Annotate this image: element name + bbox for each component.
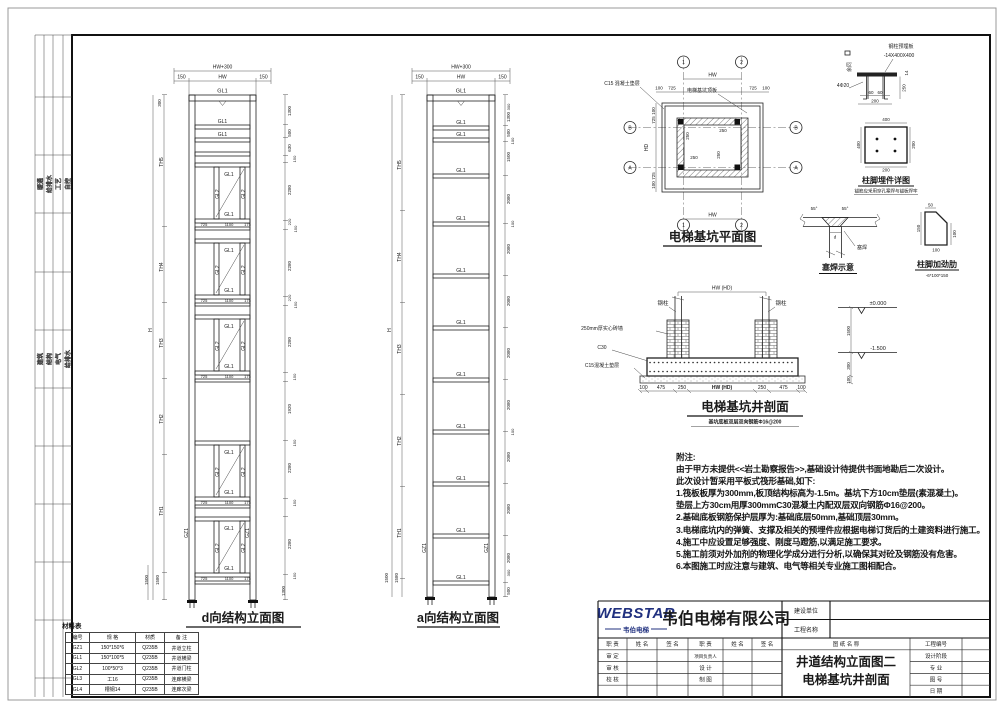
beam-label: GL1 — [224, 450, 234, 456]
dim-label: TH2 — [159, 414, 165, 424]
dim-label: 725 — [201, 222, 208, 227]
door-panel: GL1 GL2 GL2 GL1 7251100175 — [195, 315, 252, 382]
dim-label: TH5 — [397, 160, 403, 170]
drawing-name: 电梯基坑井剖面 — [802, 672, 890, 687]
dim-label: 175 — [244, 500, 251, 505]
dim-label: 1500 — [144, 574, 149, 585]
dim-label: 60 — [877, 90, 883, 95]
stiffener-detail: 50 150 100 100 柱脚加劲肋 -6*100*150 — [915, 203, 959, 279]
dim-label: 175 — [244, 222, 251, 227]
dim-label: HW — [457, 75, 466, 81]
dim-label: 725 — [749, 86, 757, 91]
dim-label: 150 — [498, 75, 507, 81]
plug-weld-detail: 55° 55° d 塞焊 塞焊示意 — [800, 206, 880, 274]
dim-label: 100 — [797, 385, 806, 391]
beam-label: GL1 — [456, 89, 466, 95]
dim-label: TH5 — [159, 157, 165, 167]
dim-label: 2080 — [506, 243, 511, 254]
dim-label: TH1 — [397, 528, 403, 538]
dim-label: 100 — [510, 428, 515, 435]
dim-label: 300 — [506, 569, 511, 576]
dim-label: 150 — [292, 155, 297, 162]
cell: Q235B — [136, 674, 165, 684]
beam-label: GL1 — [218, 132, 228, 138]
door-panel: GL1 GL2 GL2 GL1 7251100175 — [195, 441, 252, 508]
beam-label: GL1 — [456, 268, 466, 274]
dim-label: HW — [708, 213, 717, 219]
role-label: 设 计 — [699, 664, 712, 672]
detail-subtitle: -6*100*150 — [926, 273, 949, 278]
dim-label: 1100 — [225, 298, 234, 303]
dim-label: 150 — [292, 373, 297, 380]
dim-label: 60 — [868, 90, 874, 95]
column-label: GZ1 — [422, 543, 428, 553]
dim-label: 500 — [506, 129, 511, 137]
column-header: 签 名 — [761, 640, 774, 648]
level-label: -1.500 — [870, 346, 886, 352]
title-block: WEBSTAR 韦伯电梯 韦伯电梯有限公司 建设单位 工程名称 职 责 姓 名 … — [597, 601, 990, 697]
role-label: 制 图 — [699, 676, 712, 684]
dim-label: 50 — [928, 203, 934, 208]
post-label: GL2 — [241, 341, 247, 351]
field-label: 日 期 — [930, 688, 943, 695]
detail-subtitle: 锚筋应采用穿孔塞焊与锚板焊牢 — [855, 188, 918, 195]
role-label: 项目负责人 — [694, 653, 717, 660]
note-label: 钢柱预埋板 — [888, 43, 913, 50]
discipline-label: 结构 — [46, 353, 54, 365]
note-line: 垫层上方30cm用厚300mmC30混凝土内配双层双向钢筋Φ16@200。 — [676, 499, 988, 511]
column-header: 编号 — [66, 633, 90, 643]
cell: 150*150*6 — [90, 643, 136, 653]
door-panel: GL1 GL2 GL2 GL1 7251100175 — [195, 517, 252, 584]
dim-label: 1500 — [846, 325, 851, 336]
dim-label: 250 — [716, 151, 721, 159]
table-row: GL4槽钢14Q235B连廊次梁 — [66, 684, 199, 694]
dim-label: 100 — [952, 230, 957, 238]
dim-label: 2280 — [287, 184, 292, 195]
dim-label: 300 — [846, 362, 851, 370]
post-label: GL2 — [215, 189, 221, 199]
dim-label: HW (HD) — [712, 286, 733, 292]
grid-bubble-label: A — [794, 166, 798, 172]
discipline-label: 自控 — [64, 178, 72, 190]
dim-label: 55° — [842, 206, 849, 211]
cell: GL3 — [66, 674, 90, 684]
grid-bubble-label: 1 — [682, 60, 685, 66]
beam-label: GL1 — [456, 216, 466, 222]
table-row: GZ1150*150*6Q235B井道立柱 — [66, 643, 199, 653]
dim-label: 200 — [871, 99, 879, 104]
cell: 连廊次梁 — [165, 684, 199, 694]
signature-strip: 暖通 给排水 工艺 自控 建筑 结构 电气 给排水 — [35, 35, 72, 697]
dim-label: TH3 — [159, 338, 165, 348]
column-header: 职 责 — [606, 640, 619, 648]
dim-label: 250 — [758, 385, 767, 391]
dim-label: 2080 — [506, 552, 511, 563]
cell: 井道横梁 — [165, 653, 199, 663]
note-label: -14X400X400 — [884, 53, 915, 59]
column-header: 规 格 — [90, 633, 136, 643]
dim-label: 250 — [685, 132, 690, 140]
cell: 井道立柱 — [165, 643, 199, 653]
cell: 150*100*5 — [90, 653, 136, 663]
dim-label: 150 — [293, 301, 298, 308]
dim-label: 1580 — [394, 572, 399, 583]
dim-label: 100 — [655, 86, 663, 91]
cell: GZ1 — [66, 643, 90, 653]
drawing-title: 电梯基坑井剖面 — [701, 399, 789, 414]
dim-label: HW — [708, 73, 717, 79]
beam-label: GL1 — [217, 89, 227, 95]
dim-label: 100 — [510, 220, 515, 227]
post-label: GL2 — [241, 265, 247, 275]
column-label: GZ1 — [245, 528, 251, 538]
dim-label: TH2 — [397, 436, 403, 446]
column-header: 签 名 — [666, 640, 679, 648]
cell: 连廊横梁 — [165, 674, 199, 684]
column-header: 姓 名 — [731, 640, 744, 648]
note-label: C15混凝土垫层 — [585, 362, 619, 369]
grid-bubble-label: 2 — [740, 60, 743, 66]
detail-title: 柱脚埋件详图 — [862, 175, 910, 185]
beam-label: GL1 — [456, 476, 466, 482]
drawing-name: 井道结构立面图二 — [796, 654, 897, 669]
beam-label: GL1 — [456, 120, 466, 126]
dim-label: 1500 — [506, 151, 511, 162]
dim-label: HD — [644, 144, 650, 152]
embed-plate-detail: 钢柱预埋板 -14X400X400 余同 4Φ20 60 60 200 250 … — [837, 43, 918, 195]
dim-label: 14 — [904, 70, 909, 76]
beam-label: GL1 — [224, 172, 234, 178]
dim-label: TH3 — [397, 344, 403, 354]
dim-label: 250 — [902, 84, 907, 92]
dim-label: 150 — [292, 572, 297, 579]
note-line: 由于甲方未提供<<岩土勘察报告>>,基础设计待提供书面地勘后二次设计。 — [676, 463, 988, 475]
post-label: GL2 — [215, 265, 221, 275]
discipline-label: 给排水 — [64, 350, 72, 368]
column-header: 姓 名 — [636, 640, 649, 648]
dim-label: 2280 — [287, 336, 292, 347]
dim-label: 1580 — [155, 574, 160, 585]
dim-label: 150 — [415, 75, 424, 81]
field-label: 专 业 — [930, 664, 943, 672]
material-table-title: 材料表 — [62, 620, 82, 630]
discipline-label: 给排水 — [46, 175, 54, 193]
dim-label: 1100 — [225, 374, 234, 379]
dim-label: 100 — [846, 376, 851, 384]
beam-label: GL1 — [224, 490, 234, 496]
table-row: GL1150*100*5Q235B井道横梁 — [66, 653, 199, 663]
column-label: GZ1 — [484, 543, 490, 553]
beam-label: GL1 — [456, 168, 466, 174]
column-header: 材质 — [136, 633, 165, 643]
dim-label: 2080 — [506, 295, 511, 306]
role-label: 审 定 — [606, 652, 619, 660]
post-label: GL2 — [241, 467, 247, 477]
table-row: GL2100*50*3Q235B井道门柱 — [66, 664, 199, 674]
dim-label: 1920 — [287, 403, 292, 414]
material-table: 编号 规 格 材质 备 注 GZ1150*150*6Q235B井道立柱 GL11… — [65, 632, 199, 695]
column-header: 备 注 — [165, 633, 199, 643]
dim-label: 2280 — [287, 538, 292, 549]
dim-label: 2080 — [506, 399, 511, 410]
dim-label: 100 — [651, 107, 656, 115]
drawing-title: d向结构立面图 — [202, 610, 285, 625]
field-label: 工程名称 — [794, 626, 818, 634]
dim-label: 250 — [690, 155, 698, 160]
beam-label: GL1 — [456, 372, 466, 378]
column-label: GZ1 — [184, 528, 190, 538]
dim-label: H — [148, 328, 154, 332]
dim-label: 475 — [779, 385, 788, 391]
company-name: 韦伯电梯有限公司 — [662, 609, 790, 628]
cell: GL2 — [66, 664, 90, 674]
dim-label: 725 — [201, 576, 208, 581]
beam-label: GL1 — [456, 575, 466, 581]
dim-label: 150 — [292, 499, 297, 506]
dim-label: 150 — [916, 224, 921, 232]
cell: 100*50*3 — [90, 664, 136, 674]
cell: 工16 — [90, 674, 136, 684]
dim-label: d — [834, 235, 837, 240]
discipline-label: 工艺 — [55, 178, 63, 190]
dim-label: 200 — [882, 168, 890, 173]
beam-label: GL1 — [218, 119, 228, 125]
dim-label: 725 — [201, 500, 208, 505]
note-line: 5.施工前须对外加剂的物理化学成分进行分析,以确保其对砼及钢筋没有危害。 — [676, 548, 988, 560]
ladder-rungs — [433, 126, 489, 585]
dim-label: 400 — [882, 117, 890, 122]
dim-label: 1100 — [225, 222, 234, 227]
note-label: 电梯基坑顶板 — [687, 87, 717, 94]
grid-bubble-label: B — [628, 126, 632, 132]
grid-bubble-label: 1 — [682, 223, 685, 229]
beam-label: GL1 — [456, 132, 466, 138]
dim-label: 1500 — [384, 572, 389, 583]
beam-label: GL1 — [224, 248, 234, 254]
cell: GL1 — [66, 653, 90, 663]
drawing-sheet: 暖通 给排水 工艺 自控 建筑 结构 电气 给排水 HW+300 150 HW … — [0, 0, 1000, 708]
beam-label: GL1 — [456, 424, 466, 430]
dim-label: HW+300 — [213, 65, 233, 71]
dim-label: 100 — [510, 137, 515, 144]
dim-label: 1300 — [281, 585, 286, 596]
dim-label: 2280 — [287, 462, 292, 473]
discipline-label: 电气 — [55, 353, 63, 365]
cell: Q235B — [136, 664, 165, 674]
dim-label: 725 — [668, 86, 676, 91]
discipline-label: 暖通 — [37, 178, 45, 190]
dim-label: 400 — [856, 141, 861, 149]
grid-bubble-label: A — [628, 166, 632, 172]
elevation-a: HW+300 150 HW 150 GL1 GL1 GL1 GL1 GL1 GL… — [384, 65, 515, 628]
note-label: C30 — [597, 345, 606, 351]
note-label: 塞焊 — [857, 244, 867, 251]
dim-label: 475 — [657, 385, 666, 391]
cell: Q235B — [136, 684, 165, 694]
dim-label: 1100 — [225, 576, 234, 581]
field-label: 图 号 — [930, 676, 943, 684]
door-panel: GL1 GL2 GL2 GL1 7251100175 — [195, 239, 252, 306]
beam-label: GL1 — [224, 288, 234, 294]
column-header: 图 纸 名 称 — [833, 640, 860, 648]
cell: 井道门柱 — [165, 664, 199, 674]
dim-label: HW — [218, 75, 227, 81]
dim-label: 500 — [287, 129, 292, 137]
dim-label: HW (HD) — [712, 385, 733, 391]
field-label: 设计阶段 — [925, 652, 948, 660]
beam-label: GL1 — [224, 364, 234, 370]
beam-label: GL1 — [456, 528, 466, 534]
dim-label: 175 — [244, 576, 251, 581]
dim-label: 150 — [293, 225, 298, 232]
pit-plan: 1 2 1 2 B A B A HW 100 725 725 100 100 7… — [604, 56, 802, 246]
elevation-d: HW+300 150 HW 150 GL1 GL1 GL1 GL1 GL2 GL… — [144, 65, 301, 628]
dim-label: H — [387, 328, 393, 332]
notes-heading: 附注: — [676, 451, 988, 463]
note-label: 钢柱 — [657, 299, 669, 307]
note-line: 1.筏板板厚为300mm,板顶结构标高为-1.5m。基坑下方10cm垫层(素混凝… — [676, 487, 988, 499]
dim-label: 300 — [157, 99, 162, 107]
grid-bubble-label: 2 — [740, 223, 743, 229]
beam-label: GL1 — [224, 212, 234, 218]
dim-label: 1300 — [506, 111, 511, 122]
level-label: ±0.000 — [870, 301, 887, 307]
role-label: 校 核 — [606, 676, 619, 684]
dim-label: 250 — [719, 128, 727, 133]
beam-label: GL1 — [456, 320, 466, 326]
beam-label: GL1 — [224, 324, 234, 330]
dim-label: 150 — [259, 75, 268, 81]
note-line: 6.本图施工时应注意与建筑、电气等相关专业施工图相配合。 — [676, 560, 988, 572]
dim-label: 150 — [292, 439, 297, 446]
dim-label: 1100 — [225, 500, 234, 505]
dim-label: 175 — [244, 298, 251, 303]
sheet-frame — [8, 8, 996, 700]
field-label: 建设单位 — [794, 607, 818, 615]
pit-section: HW (HD) 钢柱 钢柱 250mm厚实心砖墙 C30 C15混凝土垫层 10… — [581, 286, 897, 427]
dim-label: 725 — [201, 374, 208, 379]
dim-label: 100 — [762, 86, 770, 91]
drawing-subtitle: 基坑底板双层双向钢筋Φ16@200 — [708, 419, 782, 426]
dim-label: TH1 — [159, 506, 165, 516]
detail-title: 柱脚加劲肋 — [917, 259, 957, 269]
dim-label: 220 — [287, 218, 292, 225]
dim-label: 2280 — [287, 260, 292, 271]
post-label: GL2 — [241, 189, 247, 199]
grid-bubble-label: B — [794, 126, 798, 132]
note-label: 250mm厚实心砖墙 — [581, 325, 623, 332]
company-logo-sub: 韦伯电梯 — [623, 625, 650, 634]
dim-label: 630 — [287, 144, 292, 152]
dim-label: 175 — [244, 374, 251, 379]
cell: 槽钢14 — [90, 684, 136, 694]
discipline-label: 建筑 — [37, 353, 45, 365]
dim-label: 2080 — [506, 503, 511, 514]
dim-label: 500 — [506, 587, 511, 595]
drawing-title: a向结构立面图 — [417, 610, 499, 625]
dim-label: HW+300 — [451, 65, 471, 71]
note-line: 2.基础底板钢筋保护层厚为:基础底层50mm,基础顶层30mm。 — [676, 511, 988, 523]
note-label: 4Φ20 — [837, 83, 850, 89]
column-header: 职 责 — [699, 640, 712, 648]
note-label: 余同 — [846, 62, 853, 72]
dim-label: 100 — [639, 385, 648, 391]
dim-label: 100 — [932, 248, 940, 253]
note-line: 4.施工中应设置足够强度、刚度马蹬筋,以满足施工要求。 — [676, 536, 988, 548]
detail-title: 塞焊示意 — [821, 262, 854, 272]
post-label: GL2 — [215, 467, 221, 477]
note-line: 3.电梯底坑内的弹簧、支撑及相关的预埋件应根据电梯订货后的土建资料进行施工。 — [676, 524, 988, 536]
dim-label: TH4 — [159, 262, 165, 272]
role-label: 审 核 — [606, 664, 619, 672]
dim-label: 250 — [678, 385, 687, 391]
table-row: GL3工16Q235B连廊横梁 — [66, 674, 199, 684]
table-header-row: 编号 规 格 材质 备 注 — [66, 633, 199, 643]
beam-label: GL1 — [224, 526, 234, 532]
field-label: 工程编号 — [925, 640, 948, 648]
dim-label: 200 — [911, 141, 916, 149]
dim-label: 150 — [177, 75, 186, 81]
post-label: GL2 — [215, 341, 221, 351]
dim-label: 725 — [201, 298, 208, 303]
post-label: GL2 — [241, 543, 247, 553]
dim-label: 220 — [287, 294, 292, 301]
dim-label: 2080 — [506, 193, 511, 204]
door-panel: GL1 GL2 GL2 GL1 7251100175 — [195, 163, 252, 230]
cell: GL4 — [66, 684, 90, 694]
note-label: C15 混凝土垫层 — [604, 80, 640, 87]
post-label: GL2 — [215, 543, 221, 553]
dim-label: 725 — [651, 116, 656, 124]
cell: Q235B — [136, 643, 165, 653]
dim-label: 300 — [506, 103, 511, 110]
dim-label: TH4 — [397, 252, 403, 262]
note-label: 钢柱 — [775, 299, 787, 307]
drawing-title: 电梯基坑平面图 — [669, 229, 757, 244]
dim-label: 55° — [811, 206, 818, 211]
dim-label: 1300 — [287, 105, 292, 116]
dim-label: 2080 — [506, 347, 511, 358]
dim-label: 725 — [651, 172, 656, 180]
note-line: 此次设计暂采用平板式筏形基础,如下: — [676, 475, 988, 487]
beam-label: GL1 — [224, 566, 234, 572]
cell: Q235B — [136, 653, 165, 663]
dim-label: 2080 — [506, 451, 511, 462]
general-notes: 附注: 由于甲方未提供<<岩土勘察报告>>,基础设计待提供书面地勘后二次设计。 … — [676, 451, 988, 572]
dim-label: 100 — [651, 181, 656, 189]
